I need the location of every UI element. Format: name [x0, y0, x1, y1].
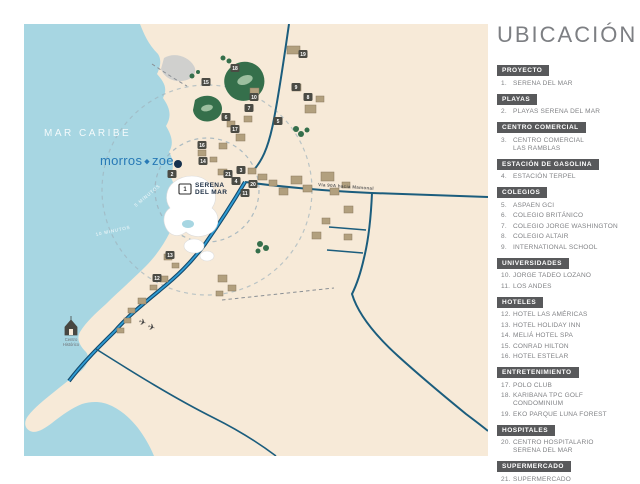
legend-item-number: 3. [501, 137, 513, 153]
legend-item-label: COLEGIO ALTAIR [513, 233, 635, 241]
legend-section: PLAYAS2.PLAYAS SERENA DEL MAR [497, 88, 635, 117]
building [138, 298, 146, 304]
project-label: SERENA DEL MAR [195, 182, 227, 196]
building [198, 150, 206, 156]
legend-item: 5.ASPAEN GCI [501, 202, 635, 210]
morros-zoe-logo: morros◆zoe [100, 153, 182, 168]
marker-number: 18 [232, 66, 238, 72]
legend-item-label: HOTEL ESTELAR [513, 353, 635, 361]
legend-section-header: UNIVERSIDADES [497, 258, 569, 269]
building [117, 328, 124, 333]
legend-item-label: LOS ANDES [513, 283, 635, 291]
page-title: UBICACIÓN [497, 22, 635, 48]
tree-icon [256, 249, 261, 254]
legend-item-label: PLAYAS SERENA DEL MAR [513, 108, 635, 116]
legend-section: ESTACIÓN DE GASOLINA4.ESTACIÓN TERPEL [497, 153, 635, 182]
legend-item-number: 8. [501, 233, 513, 241]
legend-section: UNIVERSIDADES10.JORGE TADEO LOZANO11.LOS… [497, 252, 635, 291]
map-marker-13: 13 [166, 251, 175, 259]
building [316, 96, 324, 102]
marker-number: 12 [154, 276, 160, 282]
legend-item-label: HOTEL HOLIDAY INN [513, 322, 635, 330]
building [244, 116, 252, 122]
tree-icon [305, 128, 310, 133]
tree-icon [293, 126, 299, 132]
legend-item-label: CONRAD HILTON [513, 343, 635, 351]
logo-zoe: zoe [152, 153, 174, 168]
legend-section-header: PROYECTO [497, 65, 549, 76]
logo-morros: morros [100, 153, 142, 168]
building [172, 263, 179, 268]
map-marker-3: 3 [237, 166, 246, 174]
legend-item: 7.COLEGIO JORGE WASHINGTON [501, 223, 635, 231]
map-marker-7: 7 [245, 104, 254, 112]
legend-section: CENTRO COMERCIAL3.CENTRO COMERCIAL LAS R… [497, 116, 635, 153]
building [291, 176, 302, 184]
building [312, 232, 321, 239]
legend-item: 19.EKO PARQUE LUNA FOREST [501, 411, 635, 419]
legend-sections: PROYECTO1.SERENA DEL MARPLAYAS2.PLAYAS S… [497, 59, 635, 484]
legend-item: 11.LOS ANDES [501, 283, 635, 291]
legend-section-header: ESTACIÓN DE GASOLINA [497, 159, 599, 170]
building [344, 206, 353, 213]
legend-item: 18.KARIBANA TPC GOLF CONDOMINIUM [501, 392, 635, 408]
tree-icon [221, 56, 226, 61]
marker-number: 15 [203, 80, 209, 86]
legend-item-label: INTERNATIONAL SCHOOL [513, 244, 635, 252]
legend-section-header: ENTRETENIMIENTO [497, 367, 579, 378]
legend-item: 17.POLO CLUB [501, 382, 635, 390]
marker-number: 3 [240, 168, 243, 174]
legend-item-label: SERENA DEL MAR [513, 80, 635, 88]
legend-item: 15.CONRAD HILTON [501, 343, 635, 351]
marker-number: 7 [248, 106, 251, 112]
building [321, 172, 334, 181]
diamond-icon: ◆ [144, 159, 150, 166]
map-marker-21: 21 [224, 170, 233, 178]
legend-item: 13.HOTEL HOLIDAY INN [501, 322, 635, 330]
legend-item-label: CENTRO HOSPITALARIO SERENA DEL MAR [513, 439, 635, 455]
legend-item: 12.HOTEL LAS AMÉRICAS [501, 311, 635, 319]
legend-section: HOSPITALES20.CENTRO HOSPITALARIO SERENA … [497, 419, 635, 456]
map-marker-17: 17 [231, 125, 240, 133]
legend-item-label: EKO PARQUE LUNA FOREST [513, 411, 635, 419]
legend-item-label: CENTRO COMERCIAL LAS RAMBLAS [513, 137, 635, 153]
map-marker-20: 20 [249, 180, 258, 188]
legend-item-label: COLEGIO BRITÁNICO [513, 212, 635, 220]
marker-number: 10 [251, 95, 257, 101]
building [216, 291, 223, 296]
building [228, 285, 236, 291]
building [330, 188, 339, 195]
map-marker-14: 14 [199, 157, 208, 165]
tree-icon [227, 59, 232, 64]
legend-item-number: 14. [501, 332, 513, 340]
legend-item: 20.CENTRO HOSPITALARIO SERENA DEL MAR [501, 439, 635, 455]
map-marker-4: 4 [232, 177, 241, 185]
map-marker-5: 5 [274, 117, 283, 125]
page: { "title": "UBICACIÓN", "colors": { "sea… [0, 0, 640, 480]
legend-item-number: 13. [501, 322, 513, 330]
legend-item: 6.COLEGIO BRITÁNICO [501, 212, 635, 220]
legend-item-label: POLO CLUB [513, 382, 635, 390]
legend-item-number: 20. [501, 439, 513, 455]
sea-label: MAR CARIBE [44, 128, 131, 139]
building [322, 218, 330, 224]
legend-item-label: KARIBANA TPC GOLF CONDOMINIUM [513, 392, 635, 408]
legend-section-header: COLEGIOS [497, 187, 547, 198]
tree-icon [263, 245, 269, 251]
location-map: MAR CARIBE 5 MINUTOS 10 MINUTOS morros◆z… [24, 24, 488, 456]
legend-item-number: 12. [501, 311, 513, 319]
building [124, 318, 131, 323]
tree-icon [257, 241, 263, 247]
svg-text:morros◆zoe: morros◆zoe [100, 153, 174, 168]
marker-number: 9 [295, 85, 298, 91]
marker-number: 6 [225, 115, 228, 121]
legend-item: 2.PLAYAS SERENA DEL MAR [501, 108, 635, 116]
legend-section: COLEGIOS5.ASPAEN GCI6.COLEGIO BRITÁNICO7… [497, 181, 635, 252]
legend-section-header: PLAYAS [497, 94, 537, 105]
legend-section-header: HOTELES [497, 297, 543, 308]
map-canvas: MAR CARIBE 5 MINUTOS 10 MINUTOS morros◆z… [24, 24, 488, 456]
map-marker-1: 1 [179, 184, 191, 194]
marker-number: 19 [300, 52, 306, 58]
svg-text:DEL MAR: DEL MAR [195, 189, 227, 196]
map-marker-11: 11 [241, 189, 250, 197]
map-marker-18: 18 [231, 64, 240, 72]
legend-item-label: JORGE TADEO LOZANO [513, 272, 635, 280]
building [344, 234, 352, 240]
marker-number: 13 [167, 253, 173, 259]
marker-number: 16 [199, 143, 205, 149]
legend-item-label: ASPAEN GCI [513, 202, 635, 210]
development-lagoon [182, 220, 194, 228]
marker-number: 20 [250, 182, 256, 188]
legend-section-header: SUPERMERCADO [497, 461, 571, 472]
legend-item: 3.CENTRO COMERCIAL LAS RAMBLAS [501, 137, 635, 153]
legend-item: 10.JORGE TADEO LOZANO [501, 272, 635, 280]
building [287, 46, 300, 54]
building [150, 285, 157, 290]
legend-item-number: 10. [501, 272, 513, 280]
legend-item: 8.COLEGIO ALTAIR [501, 233, 635, 241]
legend-section-header: CENTRO COMERCIAL [497, 122, 586, 133]
legend-item-label: MELIÁ HOTEL SPA [513, 332, 635, 340]
legend-item: 14.MELIÁ HOTEL SPA [501, 332, 635, 340]
building [258, 174, 267, 180]
building [219, 143, 227, 149]
building [210, 157, 217, 162]
legend-section: ENTRETENIMIENTO17.POLO CLUB18.KARIBANA T… [497, 361, 635, 419]
tree-icon [196, 70, 200, 74]
legend-panel: UBICACIÓN PROYECTO1.SERENA DEL MARPLAYAS… [497, 22, 635, 484]
legend-item-number: 19. [501, 411, 513, 419]
legend-item-number: 17. [501, 382, 513, 390]
tree-icon [190, 74, 195, 79]
historic-center-label-2: Histórico [63, 342, 80, 347]
legend-item: 1.SERENA DEL MAR [501, 80, 635, 88]
legend-item: 9.INTERNATIONAL SCHOOL [501, 244, 635, 252]
building [248, 168, 256, 174]
map-marker-19: 19 [299, 50, 308, 58]
map-marker-6: 6 [222, 113, 231, 121]
legend-item-number: 4. [501, 173, 513, 181]
legend-section: SUPERMERCADO21.SUPERMERCADO [497, 455, 635, 484]
marker-number: 2 [171, 172, 174, 178]
legend-item-number: 18. [501, 392, 513, 408]
map-marker-12: 12 [153, 274, 162, 282]
legend-item: 16.HOTEL ESTELAR [501, 353, 635, 361]
building [128, 308, 135, 313]
marker-number: 14 [200, 159, 206, 165]
legend-item-number: 6. [501, 212, 513, 220]
legend-section-header: HOSPITALES [497, 425, 555, 436]
logo-location-dot [174, 160, 182, 168]
map-marker-15: 15 [202, 78, 211, 86]
legend-item-number: 15. [501, 343, 513, 351]
marker-number: 8 [307, 95, 310, 101]
legend-item: 4.ESTACIÓN TERPEL [501, 173, 635, 181]
legend-item-number: 2. [501, 108, 513, 116]
legend-item-number: 16. [501, 353, 513, 361]
map-marker-10: 10 [250, 93, 259, 101]
building [305, 105, 316, 113]
marker-number: 4 [235, 179, 238, 185]
legend-section: PROYECTO1.SERENA DEL MAR [497, 59, 635, 88]
building [218, 275, 227, 282]
svg-text:SERENA: SERENA [195, 182, 225, 189]
marker-number: 17 [232, 127, 238, 133]
marker-number: 21 [225, 172, 231, 178]
building [269, 180, 277, 186]
legend-item-label: HOTEL LAS AMÉRICAS [513, 311, 635, 319]
legend-item-number: 11. [501, 283, 513, 291]
building [303, 185, 312, 192]
marker-number: 11 [242, 191, 248, 197]
building [236, 134, 245, 141]
legend-item-number: 9. [501, 244, 513, 252]
legend-item-number: 1. [501, 80, 513, 88]
building [279, 188, 288, 195]
map-marker-2: 2 [168, 170, 177, 178]
map-marker-16: 16 [198, 141, 207, 149]
map-marker-8: 8 [304, 93, 313, 101]
tree-icon [298, 131, 304, 137]
legend-item-number: 7. [501, 223, 513, 231]
legend-item-number: 5. [501, 202, 513, 210]
marker-number: 5 [277, 119, 280, 125]
map-marker-9: 9 [292, 83, 301, 91]
legend-item-label: COLEGIO JORGE WASHINGTON [513, 223, 635, 231]
legend-section: HOTELES12.HOTEL LAS AMÉRICAS13.HOTEL HOL… [497, 291, 635, 362]
legend-item-label: ESTACIÓN TERPEL [513, 173, 635, 181]
